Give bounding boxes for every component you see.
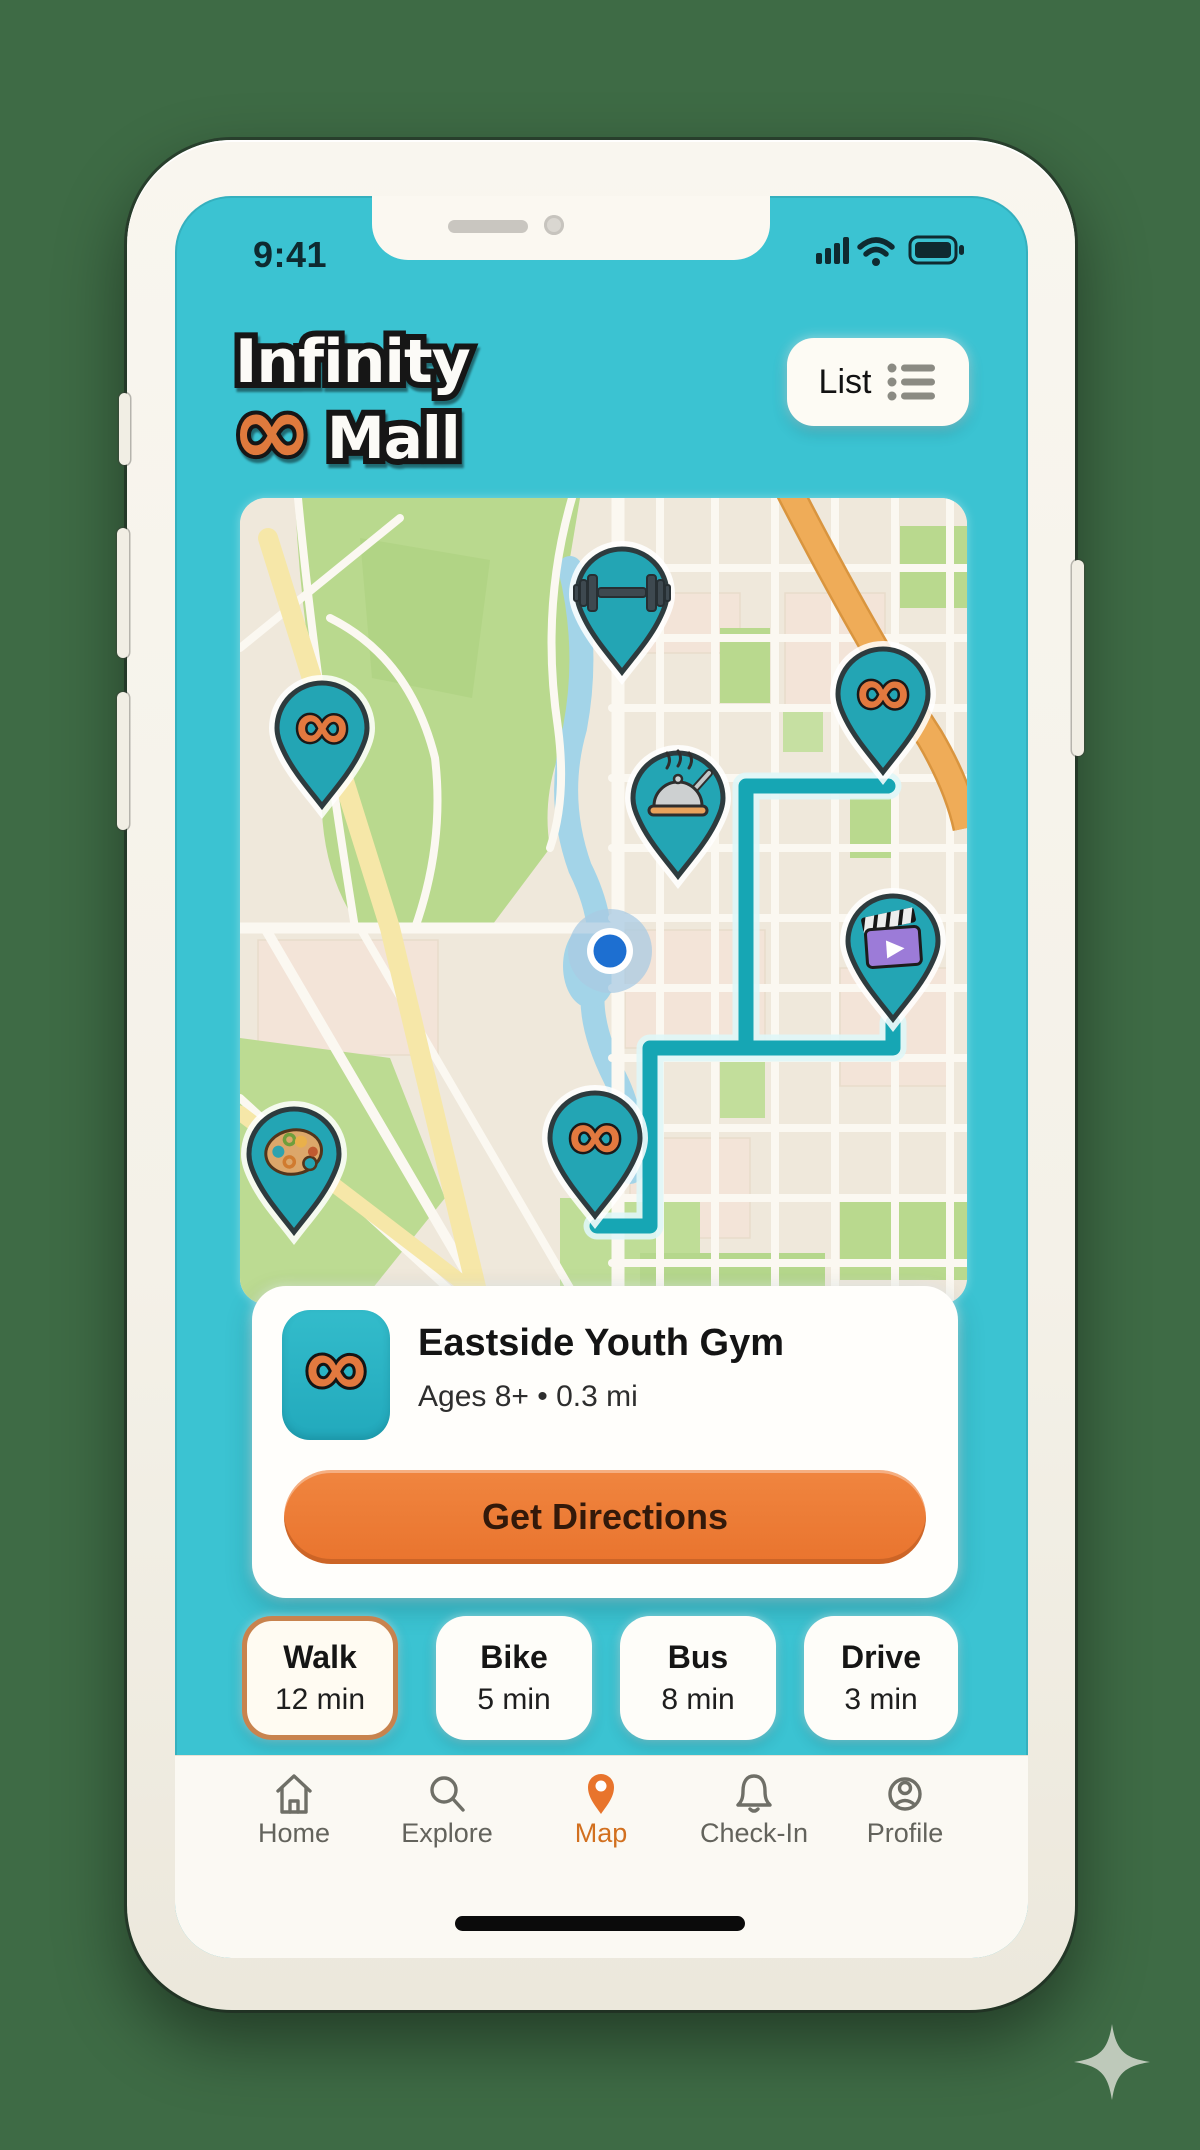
battery-icon [910, 237, 964, 263]
logo-text-mall: Mall [327, 404, 460, 472]
home-icon [229, 1770, 359, 1818]
chip-label: Drive [841, 1639, 921, 1676]
speaker-grille [448, 220, 528, 233]
tab-label: Home [229, 1818, 359, 1849]
profile-icon [840, 1770, 970, 1818]
chip-label: Walk [283, 1639, 357, 1676]
map-pin-icon [536, 1770, 666, 1818]
home-indicator[interactable] [455, 1916, 745, 1931]
chip-label: Bike [480, 1639, 548, 1676]
app-logo: Infinity ∞ Mall [233, 324, 533, 480]
travel-chip-bike[interactable]: Bike 5 min [436, 1616, 592, 1740]
tab-label: Profile [840, 1818, 970, 1849]
tab-explore[interactable]: Explore [382, 1770, 512, 1849]
list-icon [887, 360, 937, 404]
list-view-button[interactable]: List [787, 338, 969, 426]
infinity-icon: ∞ [305, 1320, 366, 1415]
tab-label: Check-In [689, 1818, 819, 1849]
travel-chip-bus[interactable]: Bus 8 min [620, 1616, 776, 1740]
volume-up-button[interactable] [117, 528, 129, 658]
tab-label: Map [536, 1818, 666, 1849]
front-camera [544, 215, 564, 235]
app-screen: 9:41 [175, 196, 1028, 1958]
power-button[interactable] [1072, 560, 1084, 756]
get-directions-label: Get Directions [482, 1496, 728, 1538]
chip-time: 3 min [844, 1683, 917, 1717]
place-card[interactable]: ∞ Eastside Youth Gym Ages 8+ • 0.3 mi Ge… [252, 1286, 958, 1598]
status-icons [816, 232, 968, 270]
mute-switch[interactable] [119, 393, 130, 465]
signal-icon [816, 237, 849, 264]
chip-time: 12 min [275, 1683, 365, 1717]
get-directions-button[interactable]: Get Directions [284, 1470, 926, 1564]
status-time: 9:41 [253, 234, 327, 276]
wifi-icon [860, 240, 892, 266]
place-tile: ∞ [282, 1310, 390, 1440]
infinity-icon: ∞ [569, 1093, 622, 1176]
chip-time: 8 min [661, 1683, 734, 1717]
tab-check-in[interactable]: Check-In [689, 1770, 819, 1849]
tab-map[interactable]: Map [536, 1770, 666, 1849]
chip-label: Bus [668, 1639, 728, 1676]
chip-time: 5 min [477, 1683, 550, 1717]
tab-label: Explore [382, 1818, 512, 1849]
logo-infinity-icon: ∞ [233, 374, 313, 480]
travel-chip-drive[interactable]: Drive 3 min [804, 1616, 958, 1740]
bell-icon [689, 1770, 819, 1818]
infinity-icon: ∞ [857, 649, 910, 732]
sparkle-decoration [1062, 2012, 1162, 2112]
tab-home[interactable]: Home [229, 1770, 359, 1849]
tab-profile[interactable]: Profile [840, 1770, 970, 1849]
place-title: Eastside Youth Gym [418, 1322, 784, 1365]
travel-chip-walk[interactable]: Walk 12 min [242, 1616, 398, 1740]
place-subtitle: Ages 8+ • 0.3 mi [418, 1380, 638, 1414]
phone-notch [372, 196, 770, 260]
volume-down-button[interactable] [117, 692, 129, 830]
search-icon [382, 1770, 512, 1818]
infinity-icon: ∞ [296, 683, 349, 766]
list-button-label: List [819, 363, 872, 402]
current-location-dot [568, 909, 652, 993]
map-view[interactable]: ∞ ∞ [240, 498, 967, 1304]
tab-bar: Home Explore Map [175, 1755, 1028, 1958]
